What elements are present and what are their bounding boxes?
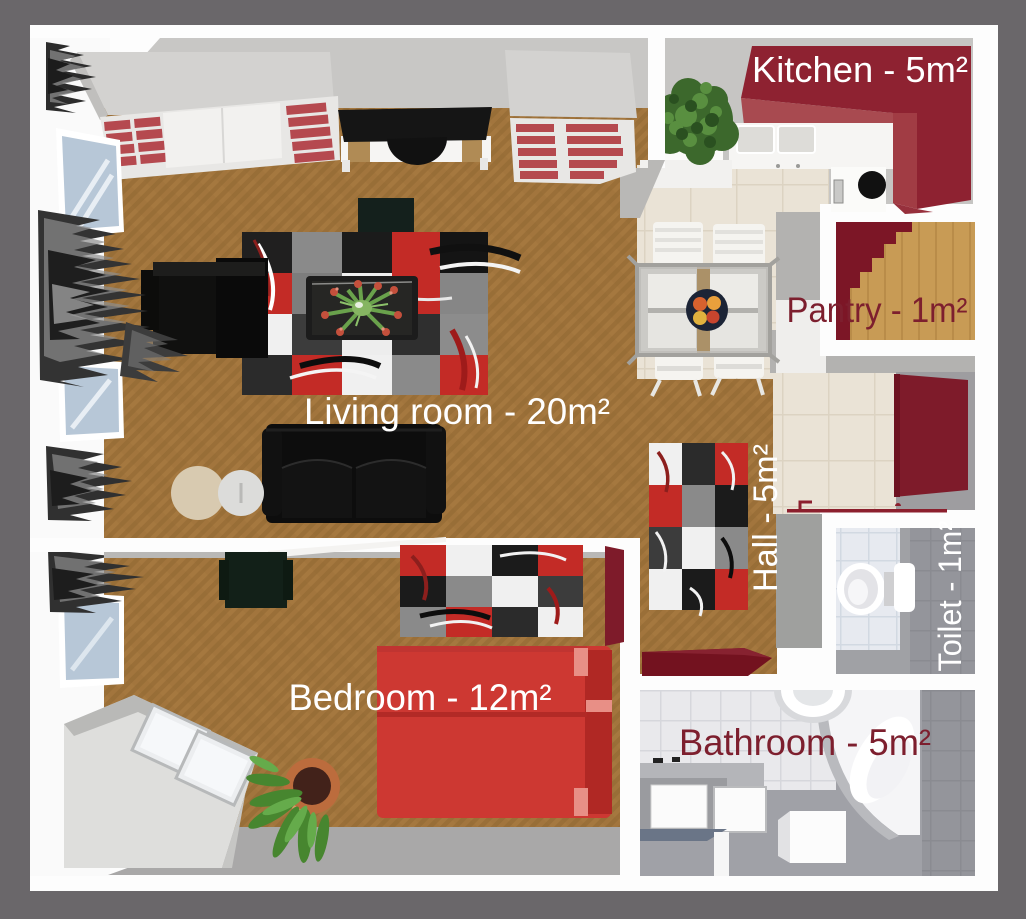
- svg-text:Toilet - 1m²: Toilet - 1m²: [932, 520, 968, 671]
- svg-text:Bedroom - 12m²: Bedroom - 12m²: [289, 677, 552, 718]
- svg-text:Bathroom - 5m²: Bathroom - 5m²: [679, 722, 931, 763]
- svg-text:Pantry - 1m²: Pantry - 1m²: [787, 291, 968, 330]
- svg-text:Hall - 5m²: Hall - 5m²: [747, 444, 785, 592]
- svg-text:Living room - 20m²: Living room - 20m²: [304, 391, 610, 432]
- svg-text:Kitchen - 5m²: Kitchen - 5m²: [752, 49, 968, 90]
